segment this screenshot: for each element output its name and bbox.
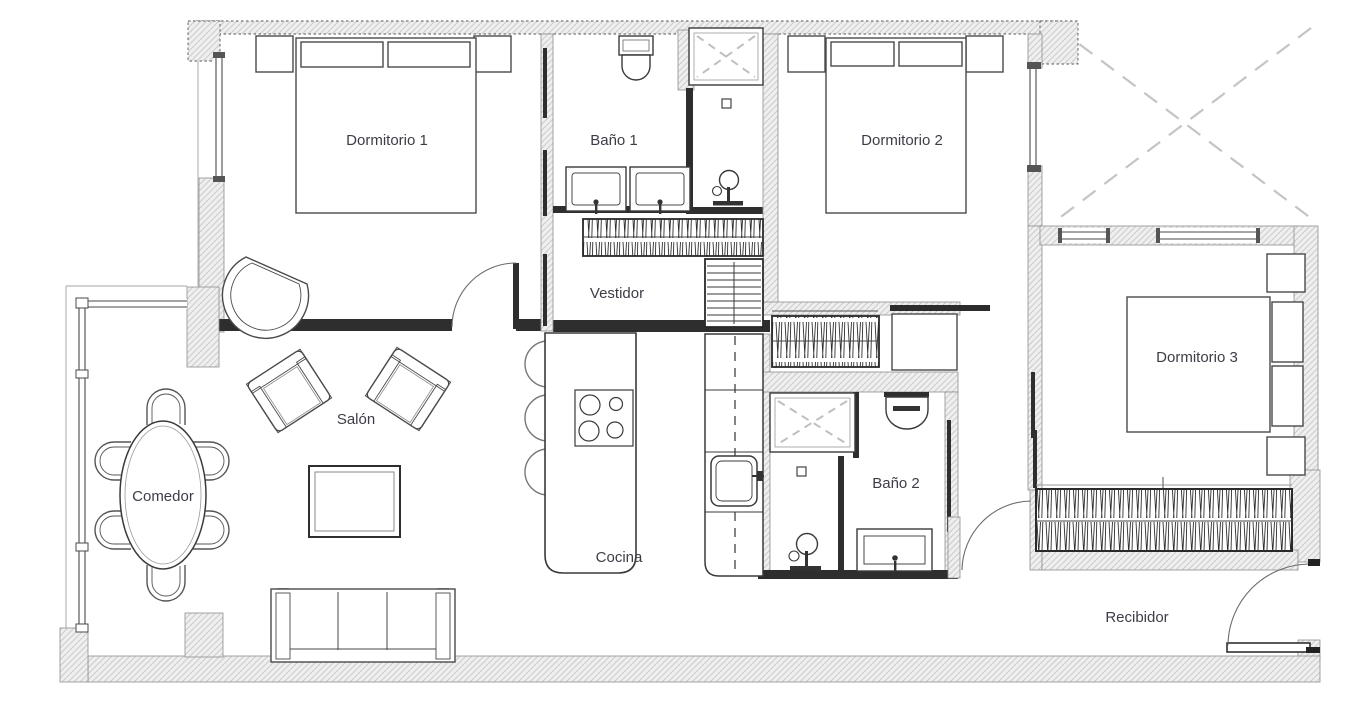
door-swing-icon [962,501,1031,570]
window [1058,228,1110,243]
room-label: Dormitorio 2 [861,132,943,149]
sliding-door-leaf [543,150,547,216]
room-bano-1: Baño 1 [566,28,763,214]
sliding-door-track [890,305,990,311]
door-swing-icon [452,263,519,329]
sofa-icon [271,588,455,662]
sink-icon [566,167,626,214]
window [213,52,225,182]
wall-segment [196,21,1062,34]
wall-segment [758,372,958,392]
room-dormitorio-3: Dormitorio 3 [1127,254,1305,475]
corner-chair-icon [223,257,309,338]
wardrobe-hanging-icon [772,311,879,367]
room-label: Cocina [596,549,643,566]
terrace-cross [1058,28,1316,222]
shower-tray-icon [689,28,763,85]
wall-segment [60,628,88,682]
sliding-door-leaf [1033,430,1037,488]
entrance-door-icon [1227,559,1320,653]
room-label: Salón [337,411,375,428]
room-cocina: Cocina [525,333,764,576]
room-comedor: Comedor [95,389,229,601]
wardrobe-hanging-icon [583,219,763,256]
room-label: Baño 1 [590,132,638,149]
wall-segment [1040,21,1078,64]
wall-segment [948,517,960,578]
room-label: Dormitorio 3 [1156,349,1238,366]
window [1027,62,1041,172]
armchair-icon [246,349,331,432]
room-salon: Salón [246,347,455,662]
dining-chair-icon [147,565,185,601]
shelf-unit-icon [705,259,763,327]
floor-plan-page: Dormitorio 1 [0,0,1365,706]
room-label: Dormitorio 1 [346,132,428,149]
wall-segment [763,34,778,310]
kitchen-counter [705,334,764,576]
nightstand-icon [1267,254,1305,292]
double-bed-icon [826,38,966,213]
sliding-door-leaf [947,420,951,532]
room-label: Vestidor [590,285,644,302]
room-vestidor: Vestidor [583,219,763,327]
toilet-icon [884,392,929,429]
sliding-door-leaf [1031,372,1035,438]
counter-sink-icon [711,456,764,506]
wall-segment [686,207,763,214]
sliding-door-leaf [543,254,547,326]
shower-head-icon [713,99,744,206]
room-dormitorio-1: Dormitorio 1 [223,36,519,338]
wall-segment [1028,166,1042,226]
window [1156,228,1260,243]
wall-segment [1042,550,1298,570]
room-bano-2: Baño 2 [770,392,932,572]
nightstand-icon [966,36,1003,72]
wall-segment [838,456,844,574]
dining-chair-icon [147,389,185,425]
armchair-icon [365,347,450,430]
wall-segment [185,613,223,657]
room-label: Recibidor [1105,609,1168,626]
wall-segment [1290,470,1320,562]
sliding-door-leaf [543,48,547,118]
room-label: Comedor [132,488,194,505]
nightstand-icon [474,36,511,72]
desk-icon [892,314,957,370]
nightstand-icon [256,36,293,72]
coffee-table-icon [309,466,400,537]
window [86,299,187,309]
nightstand-icon [788,36,825,72]
wardrobe-hanging-icon [1036,477,1292,551]
window [76,298,88,632]
room-label: Baño 2 [872,475,920,492]
double-bed-icon [296,38,476,213]
sink-icon [630,167,690,214]
sink-icon [857,529,932,572]
floor-plan-drawing: Dormitorio 1 [0,0,1365,706]
toilet-icon [619,36,653,80]
shower-head-icon [789,467,821,571]
stove-icon [575,390,633,446]
wall-segment [187,287,219,367]
shower-tray-icon [770,393,855,452]
terrace-area [1057,21,1316,222]
kitchen-island-icon [545,333,636,573]
room-dormitorio-2: Dormitorio 2 [772,36,1003,370]
nightstand-icon [1267,437,1305,475]
